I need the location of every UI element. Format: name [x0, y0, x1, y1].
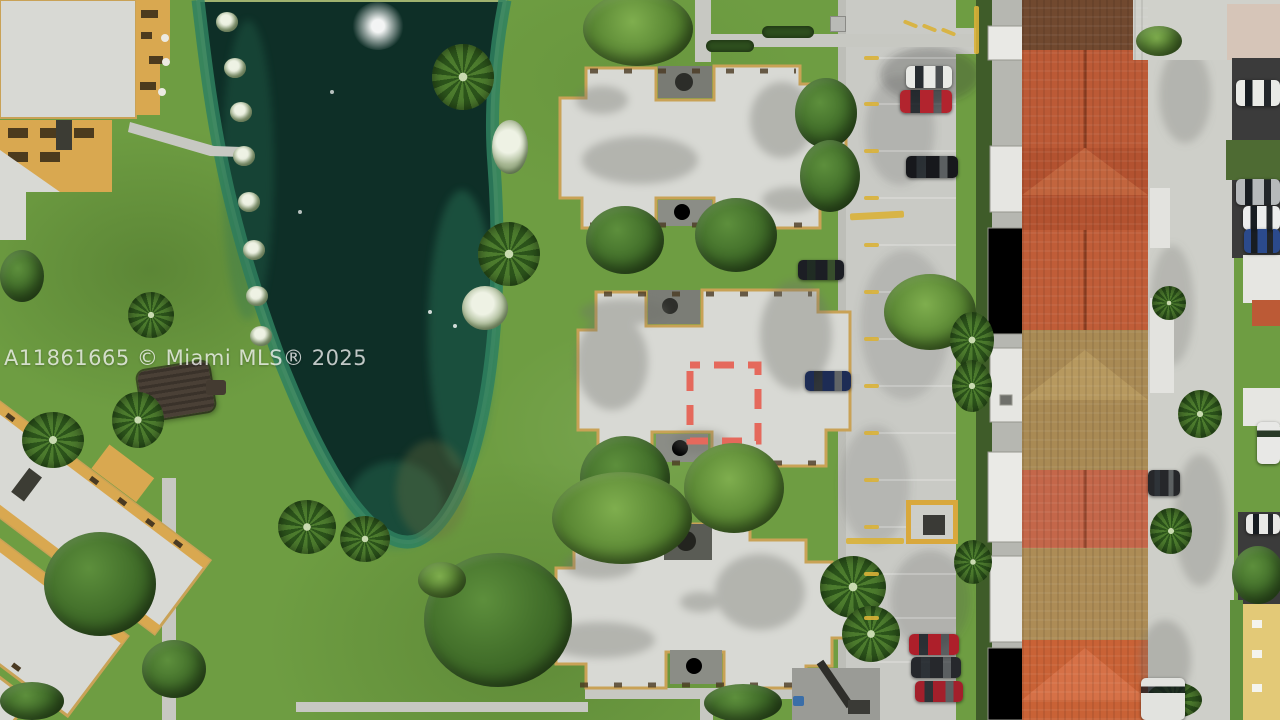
parked-car — [805, 371, 851, 391]
parked-car — [911, 657, 961, 678]
parked-car — [1148, 470, 1180, 496]
tree-canopy — [800, 140, 860, 212]
tree-canopy — [795, 78, 857, 148]
flower-shrub — [216, 12, 238, 32]
parking-curb-stop — [864, 572, 879, 576]
flower-shrub — [233, 146, 255, 166]
flower-shrub — [246, 286, 268, 306]
parking-curb-stop — [864, 478, 879, 482]
equipment-pad — [792, 662, 880, 720]
parked-car — [906, 66, 952, 88]
tree-canopy — [1232, 546, 1280, 604]
parked-car — [1236, 179, 1280, 205]
palm-tree — [1178, 390, 1222, 438]
wooden-deck-step — [206, 380, 226, 395]
parked-car — [915, 681, 963, 702]
parking-curb-stop — [864, 384, 879, 388]
palm-tree — [1152, 286, 1186, 320]
parking-curb-stop — [864, 243, 879, 247]
flower-shrub — [238, 192, 260, 212]
parking-curb-stop — [864, 196, 879, 200]
parked-truck — [1141, 678, 1185, 720]
palm-tree — [112, 392, 164, 448]
flower-shrub — [492, 120, 528, 174]
parked-car — [900, 90, 952, 113]
tree-canopy — [695, 198, 777, 272]
speed-bump — [846, 538, 904, 544]
tree-canopy — [704, 684, 782, 720]
curb-line — [974, 6, 979, 54]
palm-tree — [432, 44, 494, 110]
mls-watermark: A11861665 © Miami MLS® 2025 — [4, 346, 367, 370]
parking-curb-stop — [864, 149, 879, 153]
parked-car — [1244, 229, 1280, 253]
flower-shrub — [462, 286, 508, 330]
parking-curb-stop — [864, 525, 879, 529]
hedge — [762, 26, 814, 38]
dumpster-enclosure — [906, 500, 958, 544]
flower-shrub — [250, 326, 272, 346]
tree-canopy — [418, 562, 466, 598]
parked-car — [909, 634, 959, 655]
palm-tree — [954, 540, 992, 584]
parking-curb-stop — [864, 616, 879, 620]
tree-canopy — [142, 640, 206, 698]
beige-flat-roof — [1227, 4, 1280, 60]
palm-tree — [22, 412, 84, 468]
tile-roof-row — [1022, 0, 1148, 720]
parked-car — [1243, 206, 1280, 230]
utility-box — [830, 16, 846, 32]
lake-fountain — [352, 2, 404, 50]
east-neighborhood — [976, 0, 1280, 720]
palm-tree — [1150, 508, 1192, 554]
blue-bin — [793, 696, 804, 706]
parking-curb-stop — [864, 431, 879, 435]
northwest-buildings — [0, 0, 170, 240]
parked-car — [906, 156, 958, 178]
hedge — [706, 40, 754, 52]
parked-car — [1246, 514, 1280, 534]
flower-shrub — [224, 58, 246, 78]
parking-curb-stop — [864, 337, 879, 341]
palm-tree — [128, 292, 174, 338]
flower-shrub — [230, 102, 252, 122]
tree-canopy — [0, 250, 44, 302]
parking-curb-stop — [864, 56, 879, 60]
tree-canopy — [0, 682, 64, 720]
tree-canopy — [44, 532, 156, 636]
palm-tree — [952, 360, 992, 412]
palm-tree — [278, 500, 336, 554]
palm-tree — [842, 606, 900, 662]
aerial-photo: A11861665 © Miami MLS® 2025 — [0, 0, 1280, 720]
palm-tree — [340, 516, 390, 562]
parked-van — [1257, 422, 1280, 464]
parking-curb-stop — [864, 290, 879, 294]
tree-canopy — [1136, 26, 1182, 56]
parked-car — [798, 260, 844, 280]
tree-canopy — [684, 443, 784, 533]
tree-canopy — [552, 472, 692, 564]
tree-canopy — [586, 206, 664, 274]
flower-shrub — [243, 240, 265, 260]
dumpster — [923, 515, 945, 535]
palm-tree — [478, 222, 540, 286]
parked-car — [1236, 80, 1280, 106]
parking-curb-stop — [864, 102, 879, 106]
